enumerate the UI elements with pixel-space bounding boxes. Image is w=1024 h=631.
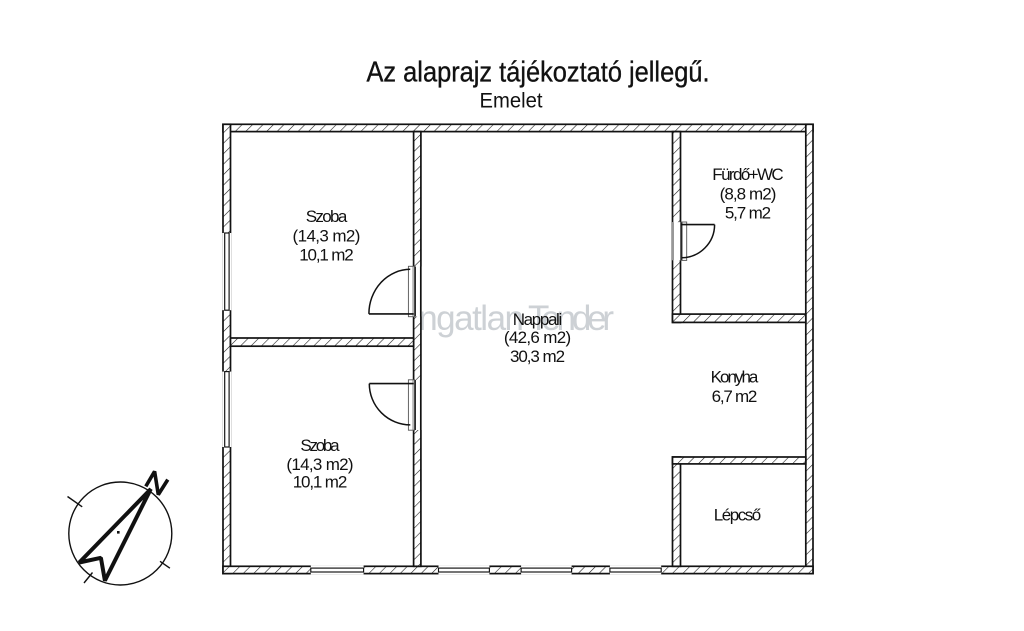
svg-text:Emelet: Emelet <box>480 89 543 113</box>
svg-text:Szoba: Szoba <box>300 436 340 455</box>
svg-text:Szoba: Szoba <box>306 207 348 226</box>
svg-text:5,7 m2: 5,7 m2 <box>725 204 771 223</box>
svg-text:Az alaprajz tájékoztató jelleg: Az alaprajz tájékoztató jellegű. <box>367 57 710 89</box>
svg-text:Lépcső: Lépcső <box>714 506 762 525</box>
svg-text:30,3 m2: 30,3 m2 <box>510 347 565 366</box>
svg-text:6,7 m2: 6,7 m2 <box>712 387 758 406</box>
svg-text:Fürdő+WC: Fürdő+WC <box>712 165 783 184</box>
svg-text:10,1 m2: 10,1 m2 <box>299 246 354 265</box>
svg-text:(14,3 m2): (14,3 m2) <box>286 455 353 474</box>
svg-text:(14,3 m2): (14,3 m2) <box>293 227 361 246</box>
svg-text:(42,6 m2): (42,6 m2) <box>504 328 571 347</box>
svg-text:Nappali: Nappali <box>513 310 563 329</box>
svg-text:Konyha: Konyha <box>711 368 759 387</box>
svg-text:(8,8 m2): (8,8 m2) <box>720 185 777 204</box>
svg-text:10,1 m2: 10,1 m2 <box>293 473 348 492</box>
